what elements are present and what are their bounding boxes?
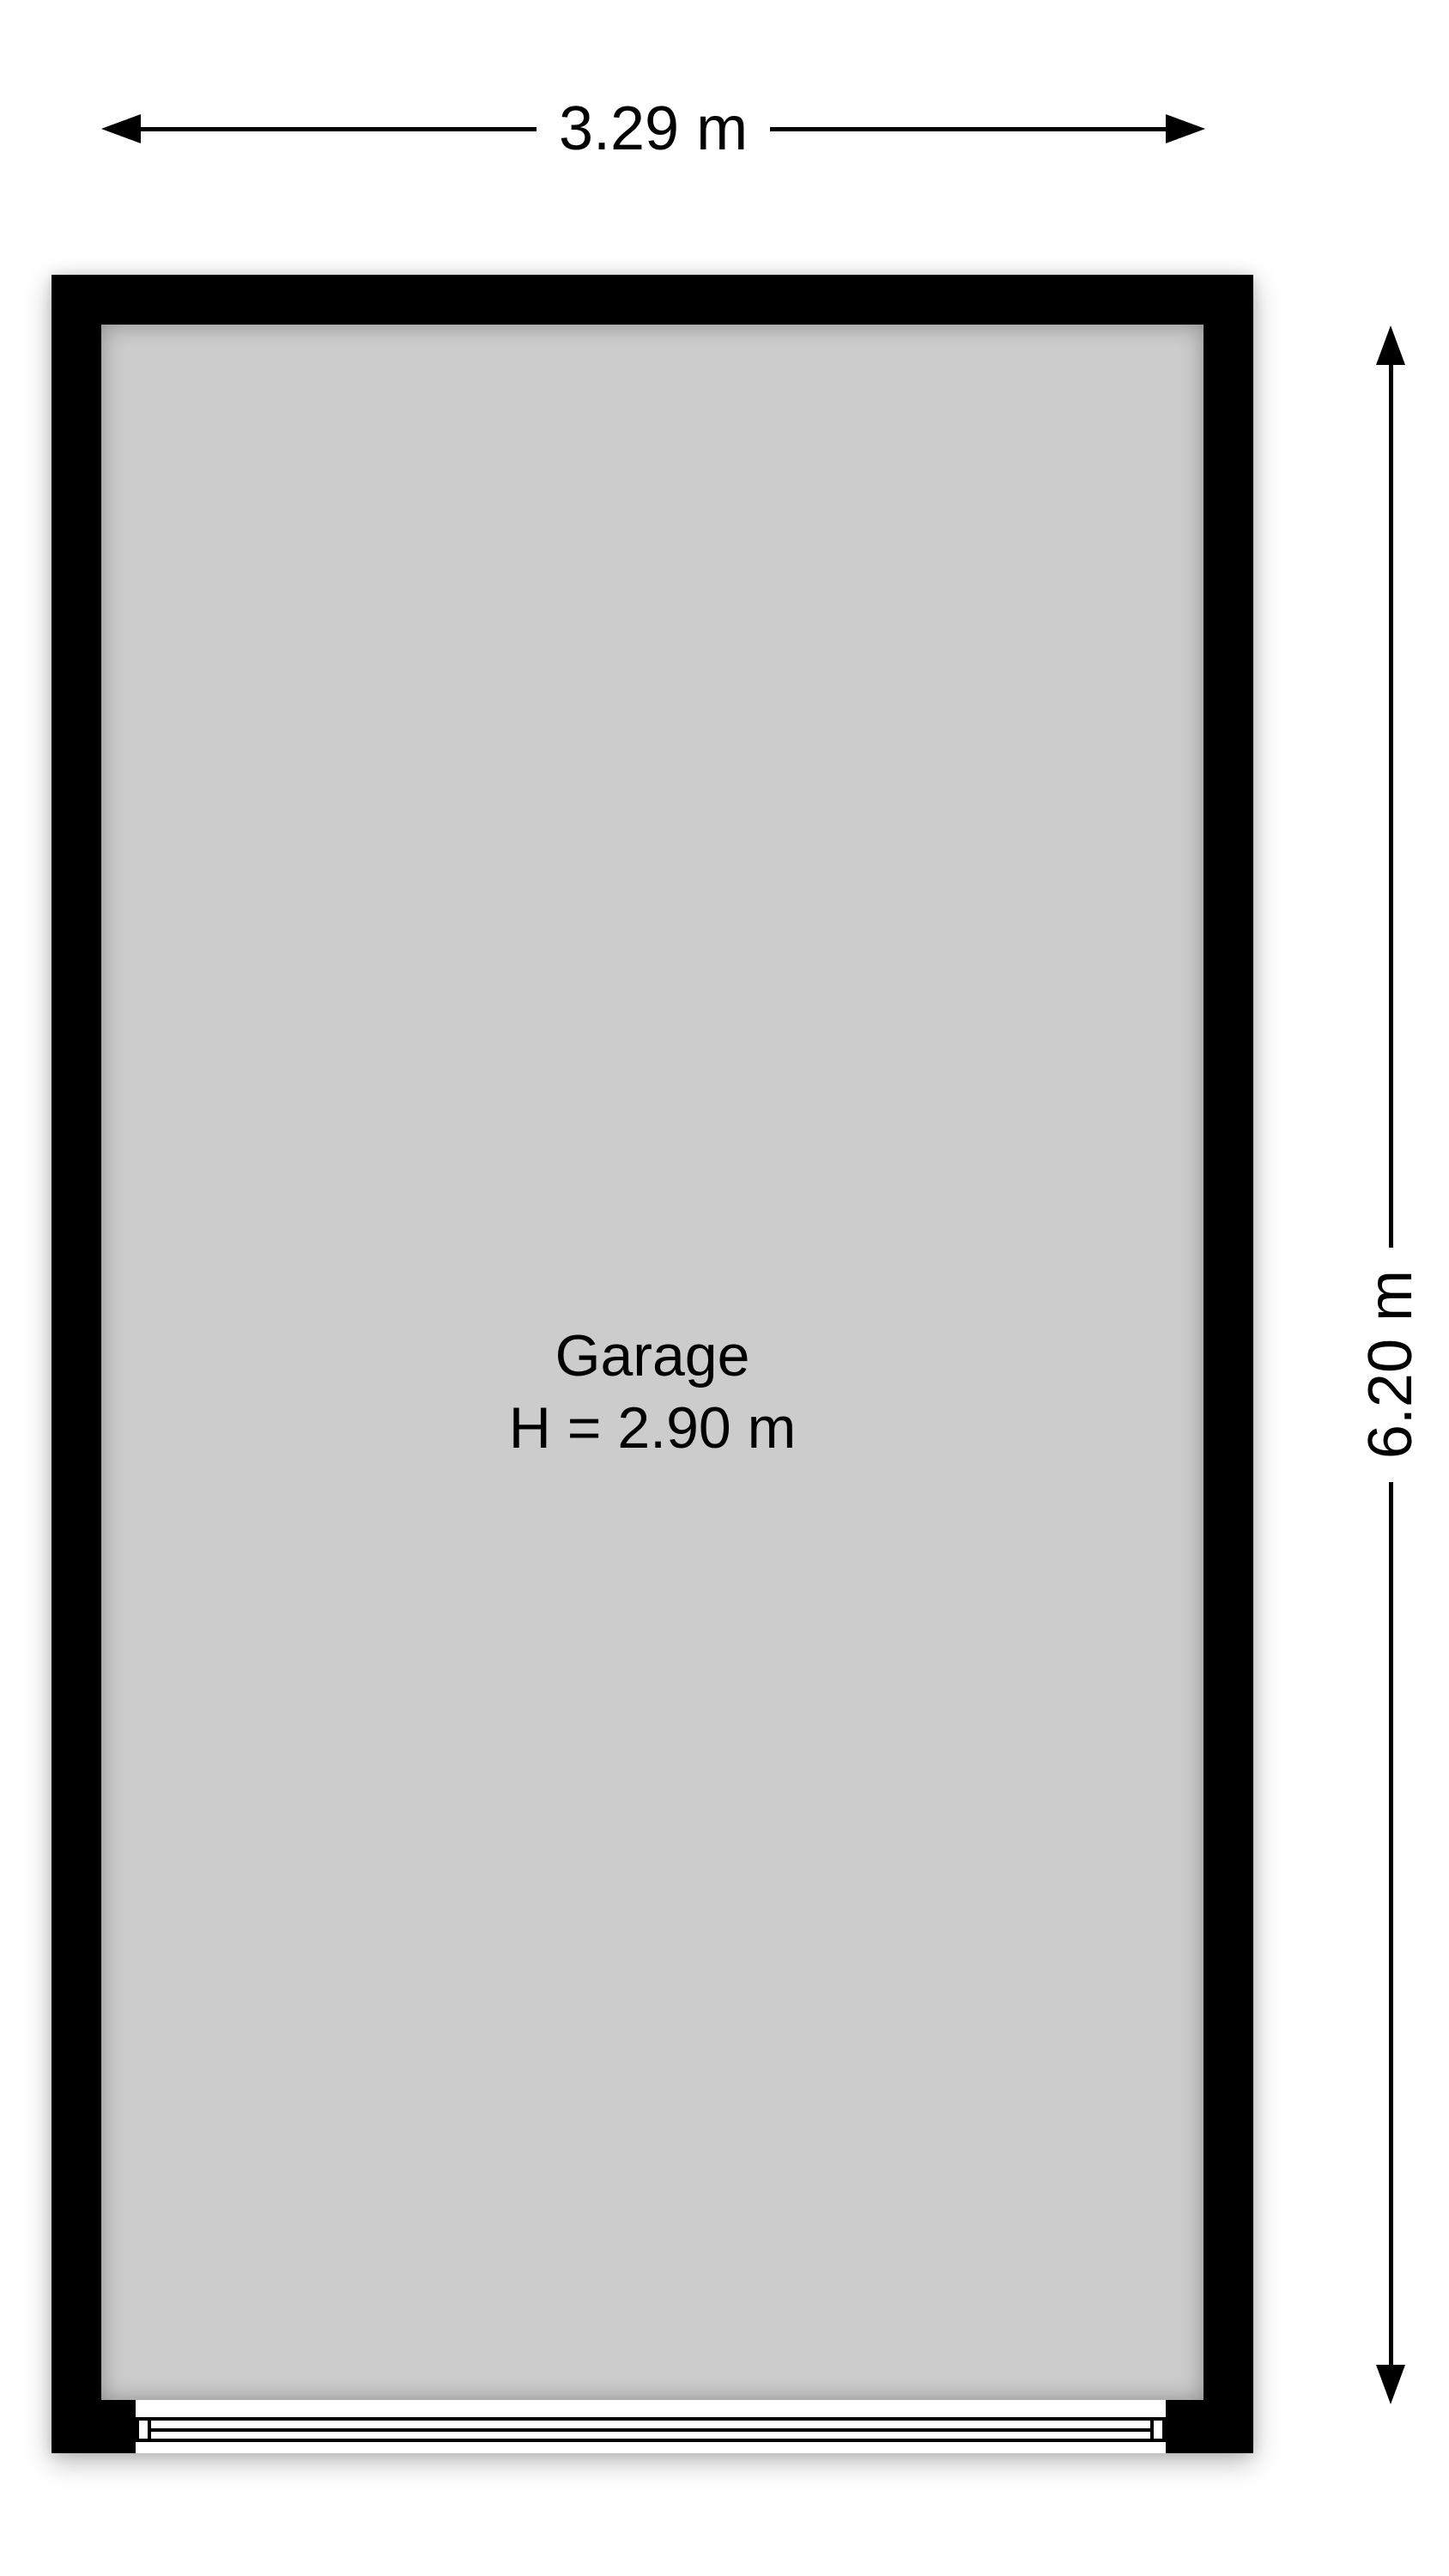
wall-top [52, 275, 1253, 325]
width-dimension-label: 3.29 m [537, 98, 770, 160]
door-end-cap-right [1150, 2421, 1154, 2439]
room-height-label: H = 2.90 m [101, 1392, 1203, 1464]
arrow-up-icon [1376, 325, 1405, 365]
garage-door [136, 2417, 1166, 2442]
dimension-line-top [1389, 365, 1393, 1248]
door-leaf-line [148, 2428, 1154, 2432]
wall-left [52, 275, 101, 2400]
arrow-right-icon [1166, 114, 1205, 143]
room-label: Garage H = 2.90 m [101, 1320, 1203, 1464]
dimension-line-left [141, 127, 537, 131]
arrow-left-icon [101, 114, 141, 143]
door-jamb-left [52, 2400, 136, 2453]
wall-right [1203, 275, 1253, 2400]
dimension-line-right [770, 127, 1166, 131]
arrow-down-icon [1376, 2365, 1405, 2404]
floorplan-canvas: 3.29 m Garage H = 2.90 m 6.20 m [0, 0, 1449, 2576]
room-name: Garage [101, 1320, 1203, 1392]
height-dimension-label: 6.20 m [1360, 1248, 1422, 1481]
door-jamb-right [1166, 2400, 1253, 2453]
dimension-line-bottom [1389, 1482, 1393, 2365]
